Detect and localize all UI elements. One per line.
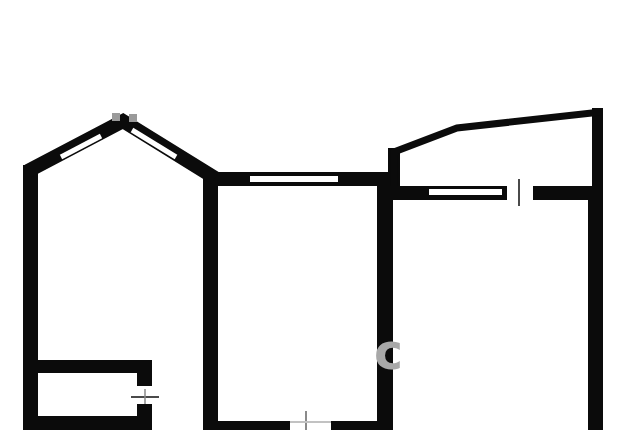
storage-room-right-wall-upper — [137, 360, 152, 386]
watermark-layer: c — [374, 324, 403, 381]
bottom-outer-wall-left — [23, 416, 152, 430]
bay-apex-notch-left — [112, 113, 120, 121]
center-room-bottom-wall-left — [203, 421, 290, 430]
center-room-divider-wall — [377, 177, 393, 430]
bay-apex-notch-right — [129, 114, 137, 122]
center-room-bottom-wall-right — [331, 421, 393, 430]
bay-peak-wall — [28, 121, 215, 178]
left-outer-wall — [23, 165, 38, 430]
balcony-outline — [394, 112, 601, 186]
left-room-divider-wall — [203, 172, 218, 430]
storage-room-right-wall-lower — [137, 404, 152, 417]
right-outer-wall — [588, 186, 603, 430]
storage-room-top-wall — [38, 360, 152, 373]
floor-plan-canvas: c — [0, 0, 640, 430]
floor-plan-drawing: c — [0, 0, 640, 430]
watermark-letter: c — [374, 324, 403, 381]
walls-layer — [23, 108, 603, 430]
door-tick-symbols-layer — [131, 179, 519, 430]
